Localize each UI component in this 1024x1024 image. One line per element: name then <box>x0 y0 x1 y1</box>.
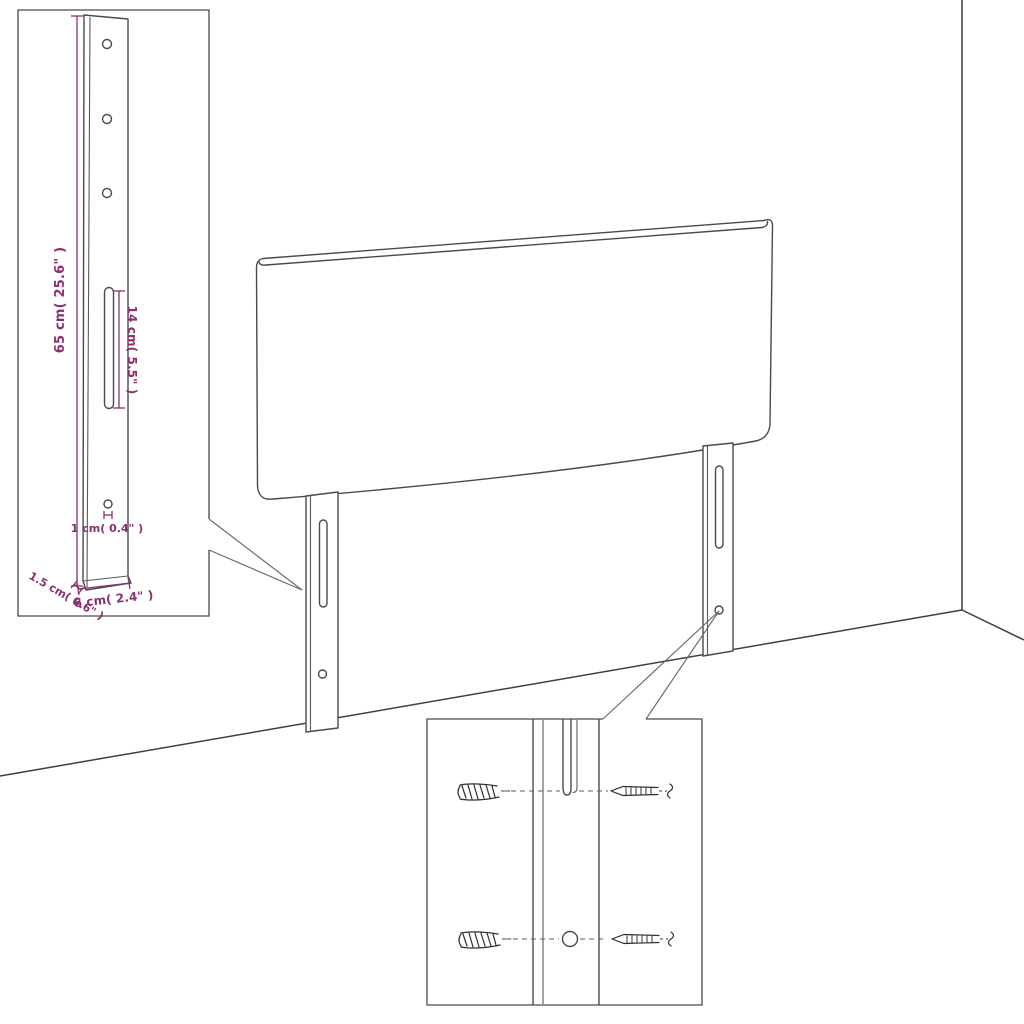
mounting-detail-inset <box>427 719 702 1005</box>
headboard-panel <box>257 220 773 500</box>
mount-inset-frame <box>427 719 702 1005</box>
mount-inset-leader-right <box>646 611 719 719</box>
leg-detail-inset: 65 cm( 25.6" ) 14 cm( 5.5" ) 1 cm( 0.4" … <box>18 10 209 623</box>
assembly-diagram: 65 cm( 25.6" ) 14 cm( 5.5" ) 1 cm( 0.4" … <box>0 0 1024 1024</box>
leg-inset-leader-top <box>209 519 302 590</box>
hole-dimension-label: 1 cm( 0.4" ) <box>71 522 143 535</box>
leg-detail-drawing <box>83 15 131 590</box>
leg-detail-outline <box>83 15 131 590</box>
diagram-svg: 65 cm( 25.6" ) 14 cm( 5.5" ) 1 cm( 0.4" … <box>0 0 1024 1024</box>
mount-inset-leader-left <box>603 611 719 719</box>
headboard-left-leg <box>306 492 338 732</box>
floor-line-right <box>962 610 1024 640</box>
height-dimension-label: 65 cm( 25.6" ) <box>53 247 68 353</box>
leg-inset-leader-bottom <box>209 550 302 590</box>
callout-leader-lines <box>209 519 719 719</box>
slot-dimension-label: 14 cm( 5.5" ) <box>125 306 139 395</box>
panel-outline <box>257 220 773 500</box>
headboard-right-leg <box>703 443 733 656</box>
